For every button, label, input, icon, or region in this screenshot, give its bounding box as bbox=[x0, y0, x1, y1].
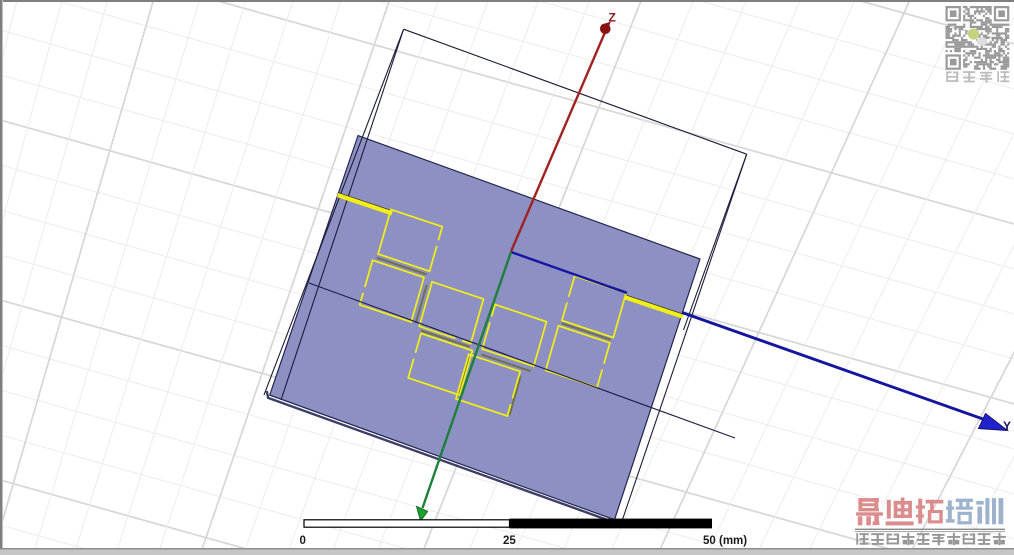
svg-text:0: 0 bbox=[300, 535, 306, 547]
svg-text:25: 25 bbox=[503, 535, 516, 547]
svg-text:50 (mm): 50 (mm) bbox=[703, 535, 747, 547]
svg-text:Z: Z bbox=[609, 11, 616, 25]
svg-text:Y: Y bbox=[1003, 419, 1011, 433]
